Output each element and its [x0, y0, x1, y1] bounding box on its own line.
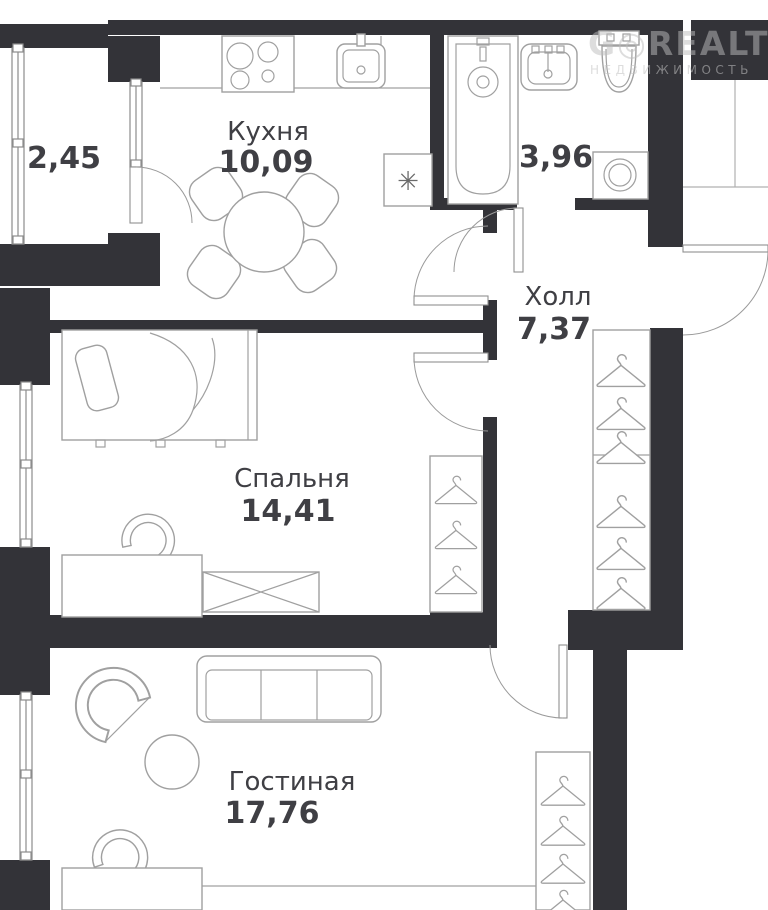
kitchen-name-label: Кухня — [227, 117, 309, 147]
dining-set — [182, 162, 344, 304]
washing-machine-icon — [593, 152, 648, 199]
stove-icon — [222, 36, 294, 92]
dining-table-icon — [224, 192, 304, 272]
hall-area-label: 7,37 — [517, 312, 591, 347]
bedroom-desk — [62, 507, 202, 617]
wall-segment — [650, 328, 683, 625]
kitchen-door — [414, 226, 488, 305]
balcony-window — [12, 44, 24, 244]
bath-sink-icon — [521, 44, 577, 90]
kitchen-area-label: 10,09 — [219, 145, 314, 180]
living-door — [490, 645, 567, 718]
floor-plan: ✳ — [0, 0, 768, 910]
dresser-icon — [203, 572, 319, 612]
wall-segment — [593, 620, 627, 910]
coffee-table-icon — [145, 735, 199, 789]
armchair-icon — [60, 652, 154, 746]
entrance-door — [683, 245, 768, 335]
watermark-subtitle: НЕДВИЖИМОСТЬ — [590, 63, 753, 77]
bed-icon — [62, 330, 257, 447]
wall-segment — [0, 860, 50, 910]
bathtub-icon — [448, 36, 518, 204]
sofa-icon — [197, 656, 381, 722]
vent-symbol: ✳ — [397, 167, 419, 197]
balcony-door — [130, 167, 192, 223]
wall-segment — [0, 547, 50, 695]
bedroom-name-label: Спальня — [234, 464, 350, 494]
wall-segment — [108, 233, 160, 286]
living-desk — [62, 825, 536, 910]
wall-segment — [0, 244, 108, 286]
watermark: G◎REALT НЕДВИЖИМОСТЬ — [588, 24, 768, 77]
bedroom-door — [414, 353, 488, 431]
wall-segment — [483, 417, 497, 648]
living-area-label: 17,76 — [225, 796, 320, 831]
balcony-area-label: 2,45 — [27, 141, 101, 176]
living-name-label: Гостиная — [229, 767, 356, 797]
wall-segment — [483, 300, 497, 360]
floor-plan-svg: ✳ — [0, 0, 768, 910]
bedroom-wardrobe — [430, 456, 482, 612]
wall-segment — [0, 288, 50, 385]
bedroom-area-label: 14,41 — [241, 494, 336, 529]
kitchen-sink-icon — [337, 34, 385, 88]
wall-segment — [575, 198, 650, 210]
living-wardrobe — [536, 752, 590, 910]
wall-segment — [30, 615, 493, 648]
desk-chair-icon — [119, 507, 181, 562]
hall-name-label: Холл — [525, 282, 592, 312]
living-window — [20, 692, 32, 860]
vent-shaft: ✳ — [384, 154, 432, 206]
wall-segment — [108, 36, 160, 82]
bedroom-window — [20, 382, 32, 547]
wall-segment — [483, 210, 497, 233]
wall-segment — [108, 20, 648, 35]
watermark-brand: G◎REALT — [588, 24, 768, 63]
balcony-partition-window — [130, 79, 142, 167]
bathroom-area-label: 3,96 — [519, 140, 593, 175]
hall-wardrobe — [593, 330, 650, 610]
